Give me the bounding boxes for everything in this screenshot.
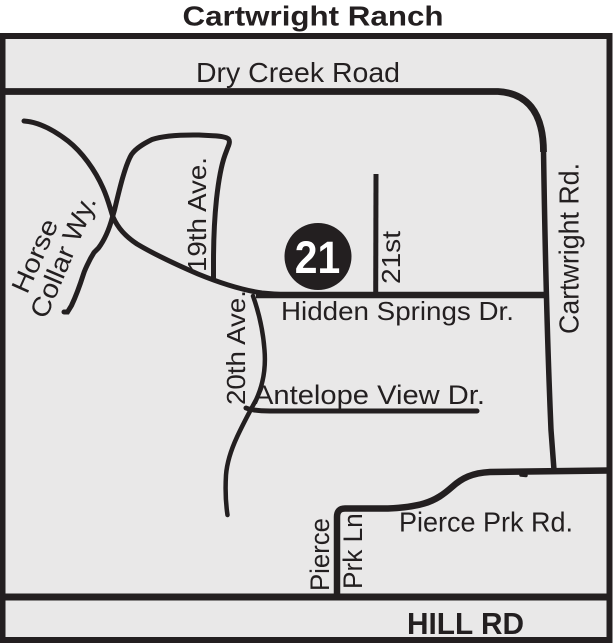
svg-text:Antelope View Dr.: Antelope View Dr. (254, 380, 485, 410)
svg-text:Cartwright Rd.: Cartwright Rd. (554, 163, 585, 334)
svg-text:20th Ave.: 20th Ave. (221, 290, 251, 405)
svg-text:Prk Ln.: Prk Ln. (338, 506, 368, 589)
svg-text:HILL RD: HILL RD (407, 606, 524, 641)
svg-text:19th Ave.: 19th Ave. (182, 157, 212, 272)
svg-text:Pierce Prk Rd.: Pierce Prk Rd. (399, 507, 573, 538)
svg-text:21st: 21st (376, 230, 406, 284)
svg-text:21: 21 (295, 232, 341, 283)
svg-text:Hidden Springs Dr.: Hidden Springs Dr. (281, 296, 514, 326)
svg-text:Dry Creek Road: Dry Creek Road (196, 57, 400, 88)
svg-text:Pierce: Pierce (305, 518, 335, 591)
svg-text:Cartwright Ranch: Cartwright Ranch (183, 1, 444, 32)
